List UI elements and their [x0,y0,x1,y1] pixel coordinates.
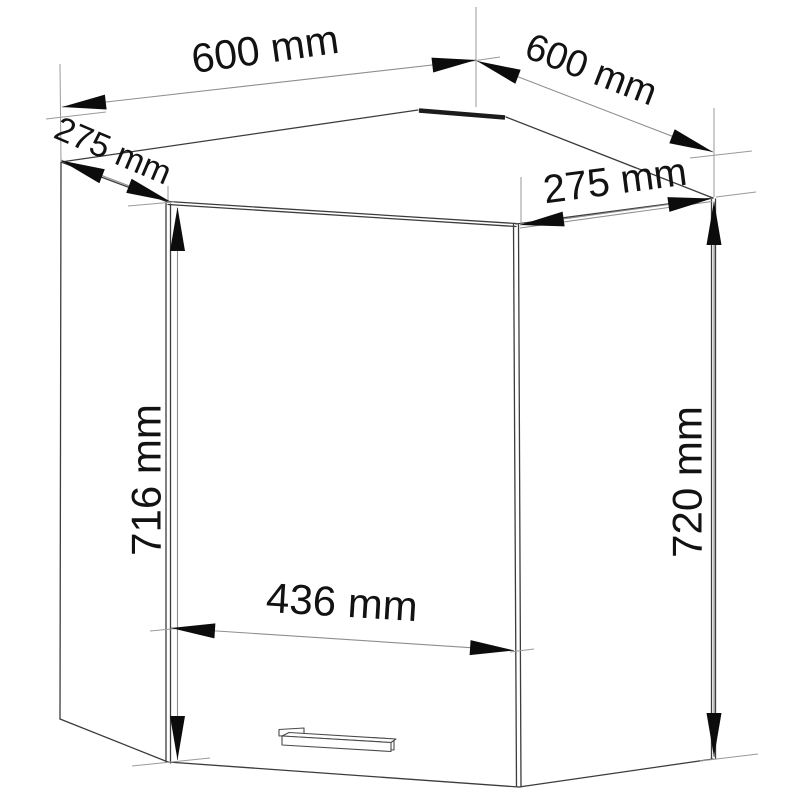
dimension-arrow [669,129,713,152]
technical-drawing-page: 600 mm 600 mm 275 mm 275 mm [0,0,800,800]
dimension-arrow [432,58,477,73]
dimension-label-716: 716 mm [123,404,170,556]
dimension-label-600-left: 600 mm [188,16,341,82]
dimension-arrow [62,95,107,110]
dimension-label-720: 720 mm [664,406,711,558]
dimension-label-436: 436 mm [265,574,419,630]
dimension-top-width-left: 600 mm [62,16,476,110]
dimension-arrow [477,61,521,84]
tick [690,151,752,158]
tick [716,192,756,197]
dimension-label-600-right: 600 mm [519,26,662,114]
corner-cabinet-diagram: 600 mm 600 mm 275 mm 275 mm [0,0,800,800]
